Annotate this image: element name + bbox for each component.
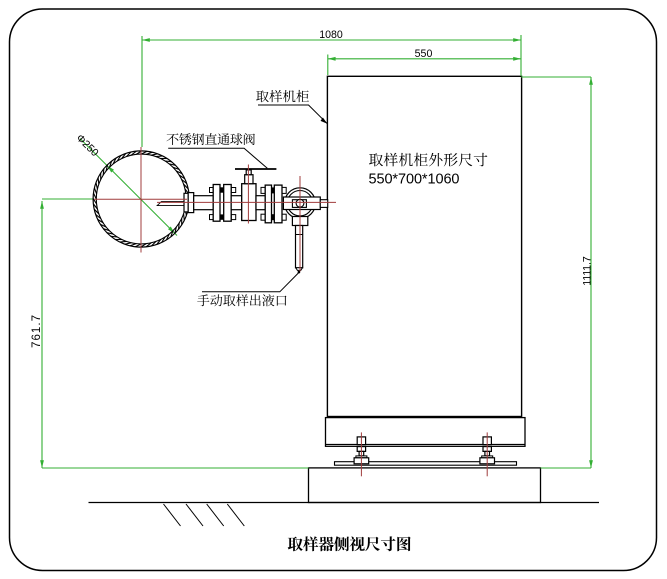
svg-text:550: 550: [415, 48, 433, 60]
svg-text:550*700*1060: 550*700*1060: [369, 172, 460, 188]
svg-text:761.7: 761.7: [31, 315, 43, 348]
svg-text:1080: 1080: [319, 29, 343, 41]
svg-text:1111.7: 1111.7: [582, 256, 594, 286]
